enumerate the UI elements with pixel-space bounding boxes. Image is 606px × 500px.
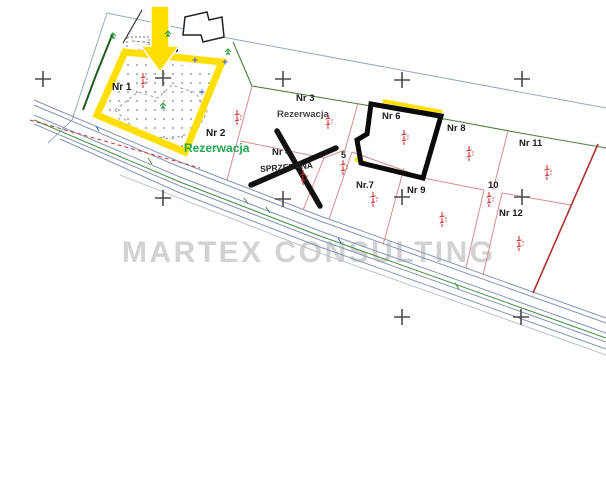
plot-label-5: 5 <box>341 150 346 160</box>
north-boundary-line <box>233 42 606 148</box>
crosshair-marker <box>35 71 51 87</box>
plot-3-status-label: Rezerwacja <box>277 109 329 120</box>
survey-marker-icon <box>440 212 448 227</box>
crosshair-marker <box>514 189 530 205</box>
plot-label-nr6: Nr 6 <box>382 111 400 122</box>
survey-marker-icon <box>517 236 525 251</box>
survey-marker-icon <box>545 165 553 180</box>
plot-label-nr3: Nr 3 <box>296 93 314 104</box>
plot-label-10: 10 <box>488 180 499 191</box>
crosshair-marker <box>514 71 530 87</box>
plot-4-status-label: SPRZEDANA <box>260 160 313 174</box>
plot-2-status-label: Rezerwacja <box>184 141 250 155</box>
plot-label-nr7: Nr.7 <box>356 180 374 191</box>
plot-label-nr11: Nr 11 <box>519 138 543 149</box>
plot-map-image: MARTEX CONSULTING <box>0 0 606 500</box>
tree-icon <box>225 49 231 55</box>
plot-label-nr12: Nr 12 <box>499 208 523 219</box>
survey-marker-icon <box>235 110 243 125</box>
map-canvas: MARTEX CONSULTING <box>0 0 606 500</box>
crosshair-marker <box>275 71 291 87</box>
plot-label-nr2: Nr 2 <box>206 128 226 139</box>
right-boundary-red-line <box>533 144 598 293</box>
crosshair-marker <box>394 309 410 325</box>
plot-label-nr1: Nr 1 <box>112 82 132 93</box>
plot-label-nr8: Nr 8 <box>447 123 465 134</box>
survey-marker-icon <box>467 146 475 161</box>
plot-label-nr4: Nr 4 <box>272 147 291 158</box>
crosshair-marker <box>394 72 410 88</box>
survey-marker-icon <box>487 192 495 207</box>
survey-marker-icon <box>402 130 410 145</box>
plot-label-nr9: Nr 9 <box>407 185 425 196</box>
fence-line <box>123 10 142 43</box>
survey-marker-icon <box>371 192 379 207</box>
crosshair-marker <box>155 190 171 206</box>
